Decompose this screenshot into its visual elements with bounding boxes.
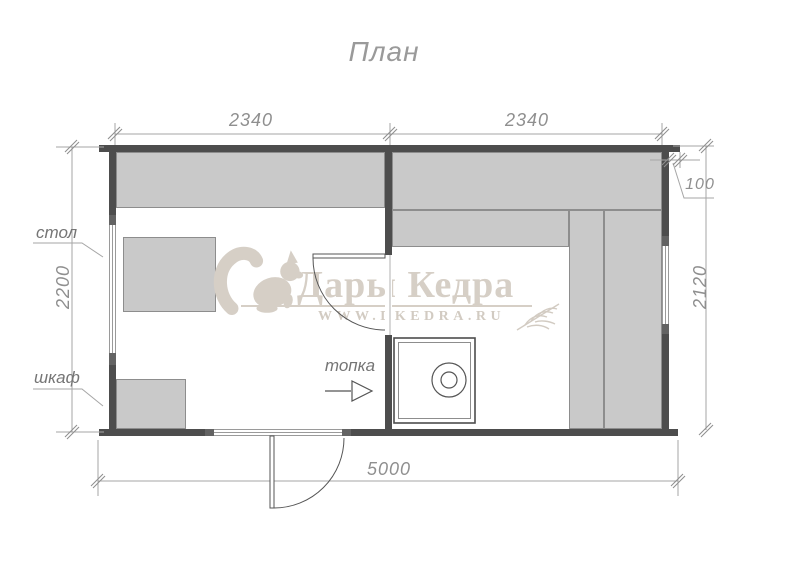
dimension-total-length: 5000 <box>349 459 429 480</box>
stove <box>394 338 475 423</box>
dimension-top-left: 2340 <box>211 110 291 131</box>
label-table: стол <box>36 223 77 243</box>
dimension-ticks <box>65 127 713 488</box>
partition-door <box>313 254 390 335</box>
firebox-arrow-icon <box>325 381 372 401</box>
label-firebox: топка <box>323 356 377 376</box>
wheat-sprig-icon <box>517 304 559 330</box>
dimension-right-depth: 2120 <box>690 255 708 319</box>
floor-plan-drawing: План Дары Кедра WWW.DKEDRA.RU <box>0 0 800 566</box>
drawing-linework <box>0 0 800 566</box>
dimension-lines <box>33 123 714 496</box>
dimension-left-depth: 2200 <box>53 255 71 319</box>
drawing-title: План <box>334 36 434 68</box>
dimension-overhang: 100 <box>682 176 718 194</box>
entry-door <box>270 436 344 508</box>
squirrel-icon <box>220 250 303 312</box>
label-cabinet: шкаф <box>34 368 80 388</box>
stove-burner-outer <box>432 363 466 397</box>
dimension-top-right: 2340 <box>487 110 567 131</box>
